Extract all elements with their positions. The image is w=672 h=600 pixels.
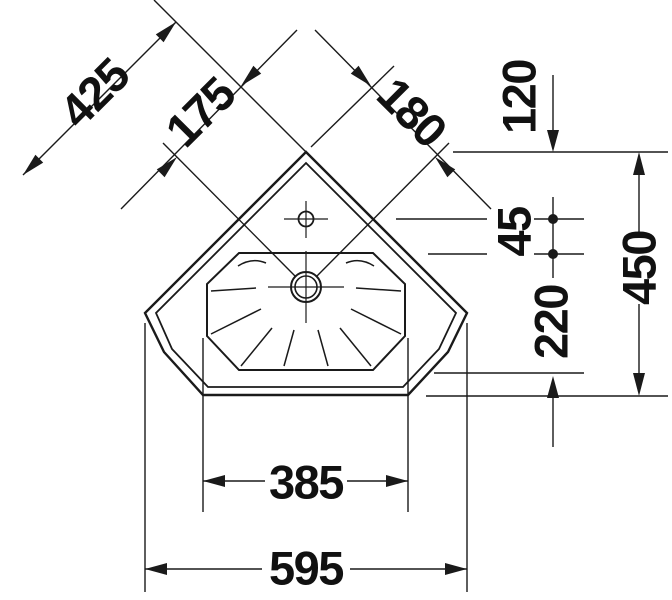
dim-label-595: 595 bbox=[269, 542, 343, 595]
technical-drawing: 425 175 180 120 45 220 450 385 595 bbox=[0, 0, 672, 600]
dim-label-220: 220 bbox=[525, 285, 578, 359]
ext-axis-left bbox=[163, 143, 296, 277]
dim-label-45: 45 bbox=[488, 207, 541, 257]
dim-label-425: 425 bbox=[49, 48, 139, 138]
dim-120 bbox=[547, 75, 559, 152]
corner-washbasin-plan: 425 175 180 120 45 220 450 385 595 bbox=[0, 0, 672, 600]
drain-hole bbox=[268, 251, 344, 323]
ext-axis-right bbox=[316, 143, 449, 277]
dim-label-120: 120 bbox=[493, 60, 546, 134]
tap-hole bbox=[284, 201, 328, 238]
dim-220 bbox=[547, 376, 559, 447]
dimension-labels: 425 175 180 120 45 220 450 385 595 bbox=[49, 48, 665, 595]
dim-45 bbox=[548, 197, 558, 278]
dim-label-180: 180 bbox=[367, 67, 457, 157]
dim-label-450: 450 bbox=[613, 231, 666, 305]
dim-label-175: 175 bbox=[155, 67, 245, 157]
dim-label-385: 385 bbox=[269, 456, 343, 509]
basin-body bbox=[145, 152, 467, 395]
